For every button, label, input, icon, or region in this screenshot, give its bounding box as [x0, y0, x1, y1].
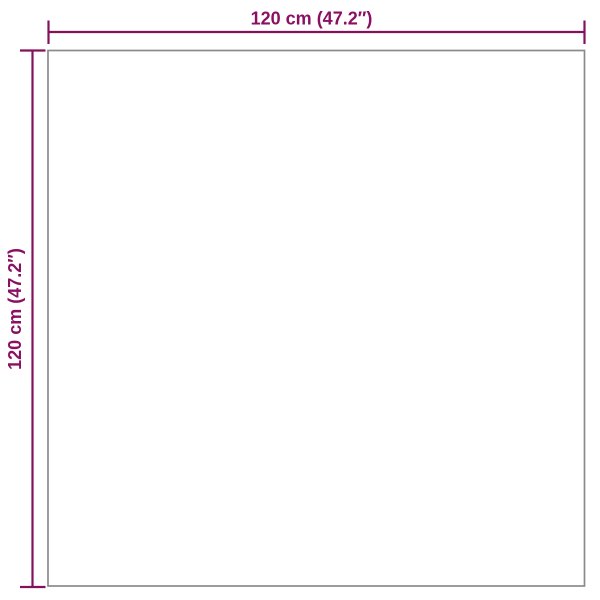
- svg-text:120 cm (47.2″): 120 cm (47.2″): [5, 248, 25, 370]
- svg-text:120 cm (47.2″): 120 cm (47.2″): [251, 9, 373, 29]
